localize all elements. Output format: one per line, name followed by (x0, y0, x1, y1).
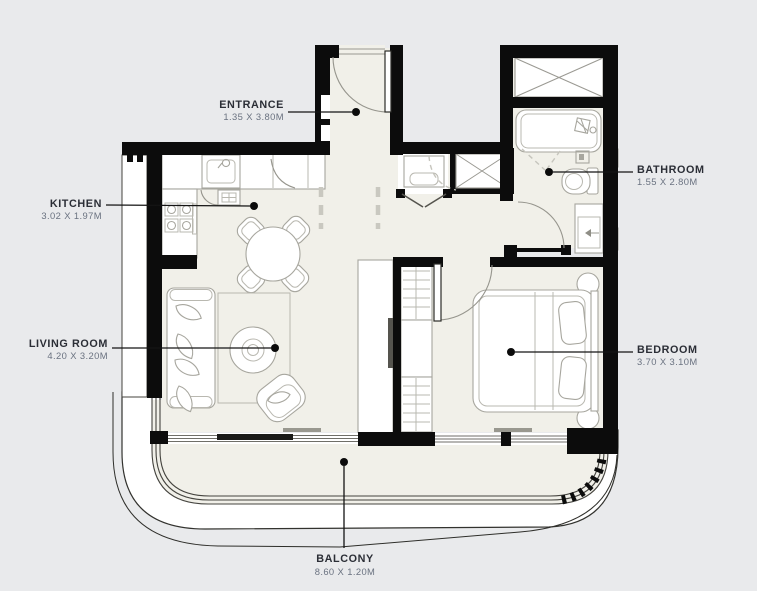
wall (390, 142, 512, 154)
wall (137, 155, 143, 162)
entrance-threshold (339, 45, 385, 58)
door-post (396, 189, 405, 198)
panel-overlap-tick (283, 428, 321, 432)
room-dimensions: 1.55 X 2.80M (637, 176, 698, 187)
wall (490, 257, 603, 267)
wall (358, 432, 435, 446)
bedroom-window (435, 433, 501, 445)
sliding-panel (217, 434, 293, 440)
label-dot (250, 202, 258, 210)
kitchen-counter-top (162, 153, 325, 189)
room-name: KITCHEN (50, 198, 102, 210)
door-post (443, 189, 452, 198)
bed (473, 290, 598, 412)
kitchen-appliance (218, 190, 240, 205)
wall (390, 45, 403, 155)
wall (393, 260, 401, 435)
room-name: BALCONY (316, 553, 374, 565)
label-dot (340, 458, 348, 466)
room-name: LIVING ROOM (29, 338, 108, 350)
room-dimensions: 3.70 X 3.10M (637, 356, 698, 367)
door-post (504, 245, 517, 257)
wardrobe (401, 262, 432, 432)
wall (567, 428, 618, 454)
room-name: ENTRANCE (219, 99, 284, 111)
label-dot (271, 344, 279, 352)
wall-recess (321, 95, 330, 119)
label-dot (352, 108, 360, 116)
pillow (558, 356, 587, 400)
laundry-niche (398, 154, 448, 194)
wall (500, 45, 618, 58)
bathroom-door-leaf (517, 248, 563, 252)
wall (501, 432, 511, 446)
panel-overlap-tick (494, 428, 532, 432)
facade-fin (122, 155, 147, 397)
floor-plan: ENTRANCE 1.35 X 3.80M KITCHEN 3.02 X 1.9… (0, 0, 757, 591)
sofa (167, 288, 215, 414)
tv (388, 318, 393, 368)
wall (127, 155, 133, 162)
duct-shaft (515, 58, 603, 97)
bathroom-doorway-floor (498, 200, 515, 246)
dining-table (246, 227, 300, 281)
wall (162, 255, 197, 269)
room-dimensions: 1.35 X 3.80M (223, 111, 284, 122)
wall (513, 97, 603, 108)
utility-closet (398, 148, 514, 194)
label-dot (507, 348, 515, 356)
wall (147, 142, 162, 398)
wall (500, 45, 513, 201)
room-name: BATHROOM (637, 164, 705, 176)
coffee-table (230, 327, 276, 373)
entrance-floor (330, 48, 390, 155)
pillow (558, 301, 587, 345)
vanity-sink (575, 204, 603, 253)
room-dimensions: 8.60 X 1.20M (315, 566, 376, 577)
wall (315, 45, 339, 58)
headboard (591, 291, 598, 411)
room-name: BEDROOM (637, 344, 698, 356)
wall (150, 431, 168, 444)
label-dot (545, 168, 553, 176)
wall (603, 45, 618, 448)
room-dimensions: 3.02 X 1.97M (41, 210, 102, 221)
wall-recess (321, 125, 330, 141)
tv-console (358, 260, 393, 433)
bathtub (516, 110, 601, 152)
kitchen-sink (202, 155, 240, 188)
room-dimensions: 4.20 X 3.20M (47, 350, 108, 361)
